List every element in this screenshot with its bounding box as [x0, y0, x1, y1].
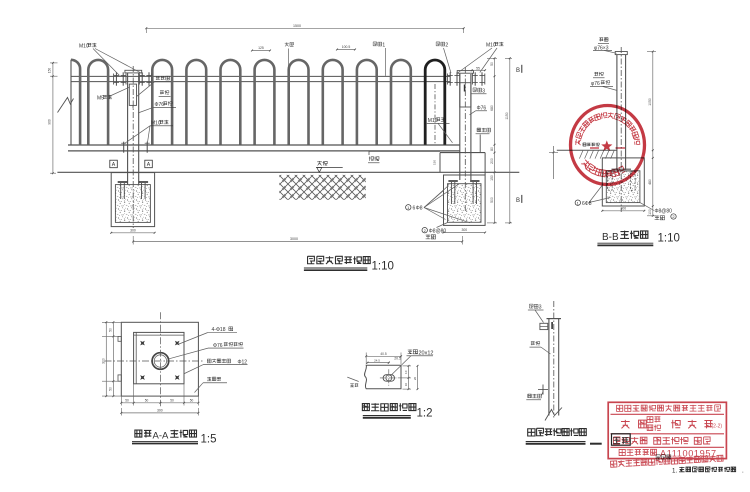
svg-text:6Φ8: 6Φ8	[582, 201, 592, 207]
svg-text:M10: M10	[79, 44, 89, 50]
svg-text:B-B: B-B	[602, 232, 619, 243]
svg-text:680: 680	[490, 105, 494, 111]
svg-text:500: 500	[490, 197, 494, 203]
svg-text:100.5: 100.5	[342, 45, 351, 49]
svg-text:10: 10	[404, 370, 408, 374]
svg-text:50: 50	[125, 399, 129, 403]
svg-text:20.5: 20.5	[394, 356, 401, 360]
svg-text:1500: 1500	[293, 24, 301, 28]
svg-text:50: 50	[490, 62, 494, 66]
svg-text:50: 50	[145, 399, 149, 403]
svg-text:A: A	[112, 162, 116, 168]
svg-text:300: 300	[620, 207, 626, 211]
svg-text:50: 50	[190, 399, 194, 403]
svg-text:900: 900	[47, 119, 51, 125]
svg-text:B: B	[516, 68, 520, 74]
svg-text:300: 300	[130, 229, 136, 233]
svg-text:A: A	[147, 162, 151, 168]
svg-text:M5: M5	[97, 96, 104, 102]
svg-text:3000: 3000	[290, 237, 298, 241]
svg-text:M10: M10	[486, 43, 496, 49]
svg-text:.: .	[742, 468, 744, 475]
svg-text:125: 125	[258, 46, 264, 50]
svg-text:100: 100	[648, 209, 652, 215]
svg-text:2: 2	[445, 43, 448, 49]
svg-text:150: 150	[433, 160, 437, 165]
svg-text:150: 150	[47, 68, 51, 74]
svg-text:(2-2): (2-2)	[712, 424, 723, 430]
svg-text:10: 10	[404, 383, 408, 387]
svg-text:150: 150	[490, 175, 494, 181]
svg-text:50: 50	[109, 328, 113, 332]
svg-text:24.5: 24.5	[374, 358, 380, 362]
svg-text:50: 50	[170, 399, 174, 403]
svg-text:1: 1	[382, 43, 385, 49]
svg-text:1:2: 1:2	[417, 408, 433, 420]
svg-text:300: 300	[157, 409, 163, 413]
svg-text:300: 300	[461, 228, 467, 232]
svg-text:A-A: A-A	[153, 431, 170, 442]
svg-text:300: 300	[102, 358, 106, 364]
svg-text:480: 480	[648, 179, 652, 185]
svg-text:80: 80	[490, 147, 494, 151]
svg-text:B: B	[516, 198, 520, 204]
svg-text:200: 200	[490, 158, 494, 164]
svg-text:Φ8: Φ8	[416, 206, 423, 212]
svg-text:20: 20	[413, 377, 417, 381]
svg-text:Φ8@80: Φ8@80	[655, 209, 673, 215]
svg-text:50: 50	[109, 387, 113, 391]
svg-text:1:10: 1:10	[372, 261, 394, 273]
svg-text:1150: 1150	[505, 112, 509, 119]
svg-text:55: 55	[476, 66, 480, 70]
svg-text:Φ8@80: Φ8@80	[429, 228, 447, 234]
svg-text:40.5: 40.5	[380, 352, 386, 356]
svg-text:1050: 1050	[648, 98, 652, 106]
svg-text:1:10: 1:10	[658, 232, 680, 244]
svg-text:1.: 1.	[672, 468, 677, 475]
svg-text:1:5: 1:5	[201, 434, 217, 446]
